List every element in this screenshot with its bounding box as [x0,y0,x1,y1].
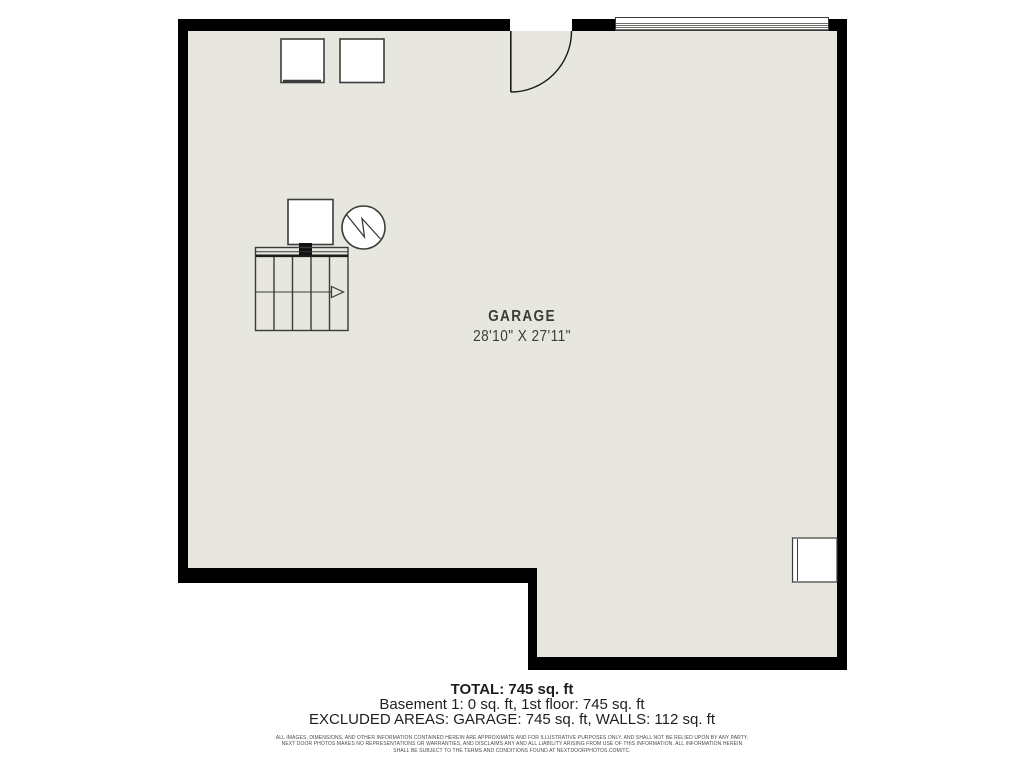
furnace-duct-stub [299,243,312,256]
total-area-text: TOTAL: 745 sq. ft [0,682,1024,697]
dryer-symbol [340,39,384,83]
disclaimer-text: ALL IMAGES, DIMENSIONS, AND OTHER INFORM… [0,735,1024,754]
room-dimensions: 28'10" X 27'11" [390,329,654,344]
garage-door [616,18,829,31]
disclaimer-line-3: SHALL BE SUBJECT TO THE TERMS AND CONDIT… [0,748,1024,754]
furnace-symbol [288,200,333,245]
storage-unit-symbol [793,538,838,582]
entry-door-opening [510,18,572,31]
excluded-areas-text: EXCLUDED AREAS: GARAGE: 745 sq. ft, WALL… [0,712,1024,727]
room-label: GARAGE [390,309,654,324]
floor-areas-text: Basement 1: 0 sq. ft, 1st floor: 745 sq.… [0,697,1024,712]
water-heater-symbol [342,206,385,249]
floorplan-page: GARAGE 28'10" X 27'11" TOTAL: 745 sq. ft… [0,0,1024,768]
floorplan-drawing [0,0,1024,768]
washer-symbol [281,39,324,83]
